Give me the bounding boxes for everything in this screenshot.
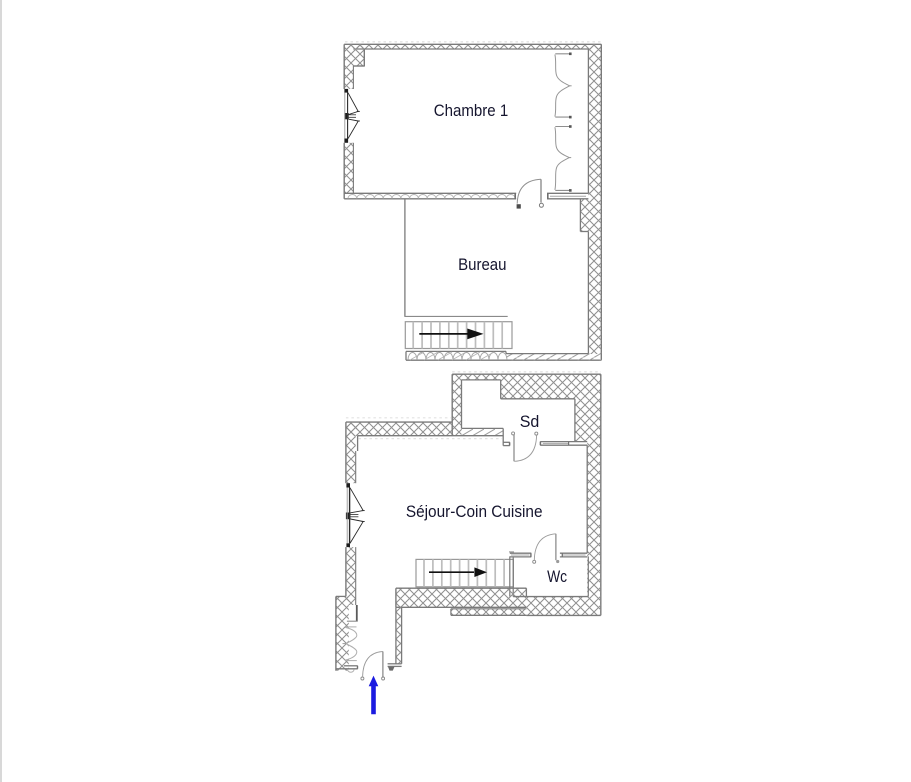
svg-text:Chambre 1: Chambre 1 bbox=[434, 102, 509, 120]
svg-text:Séjour-Coin Cuisine: Séjour-Coin Cuisine bbox=[406, 503, 543, 521]
svg-text:Wc: Wc bbox=[547, 568, 567, 586]
svg-text:Sd: Sd bbox=[520, 413, 540, 431]
svg-text:Bureau: Bureau bbox=[458, 256, 506, 274]
